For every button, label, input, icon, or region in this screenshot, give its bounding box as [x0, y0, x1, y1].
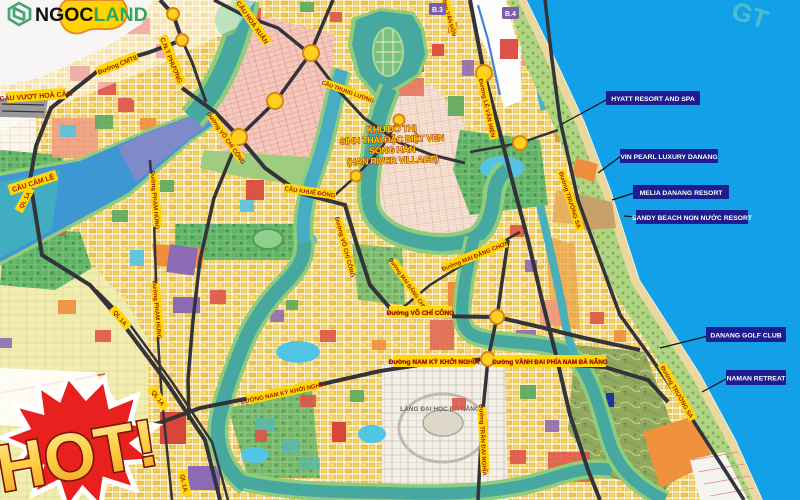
- svg-text:LÀNG ĐẠI HỌC ĐÀ NẴNG: LÀNG ĐẠI HỌC ĐÀ NẴNG: [400, 404, 480, 413]
- svg-text:B.3: B.3: [432, 7, 443, 14]
- svg-text:Đường NAM KỲ KHỞI NGHĨA: Đường NAM KỲ KHỞI NGHĨA: [389, 357, 480, 366]
- svg-text:HYATT RESORT AND SPA: HYATT RESORT AND SPA: [611, 96, 695, 103]
- svg-text:MELIA DANANG RESORT: MELIA DANANG RESORT: [640, 190, 724, 197]
- svg-text:SÔNG HÀN: SÔNG HÀN: [369, 143, 415, 156]
- svg-text:VIN PEARL LUXURY DANANG: VIN PEARL LUXURY DANANG: [620, 154, 717, 161]
- svg-text:NGOCLAND: NGOCLAND: [35, 4, 148, 26]
- svg-text:DANANG GOLF CLUB: DANANG GOLF CLUB: [710, 333, 781, 340]
- svg-text:Đường VÕ CHÍ CÔNG: Đường VÕ CHÍ CÔNG: [387, 308, 454, 317]
- svg-text:B.4: B.4: [505, 11, 516, 18]
- svg-text:SANDY BEACH NON NƯỚC RESORT: SANDY BEACH NON NƯỚC RESORT: [632, 213, 753, 222]
- svg-text:NAMAN RETREAT: NAMAN RETREAT: [727, 376, 787, 383]
- svg-text:Đường VÀNH ĐAI PHÍA NAM ĐÀ NẴN: Đường VÀNH ĐAI PHÍA NAM ĐÀ NẴNG: [492, 358, 607, 366]
